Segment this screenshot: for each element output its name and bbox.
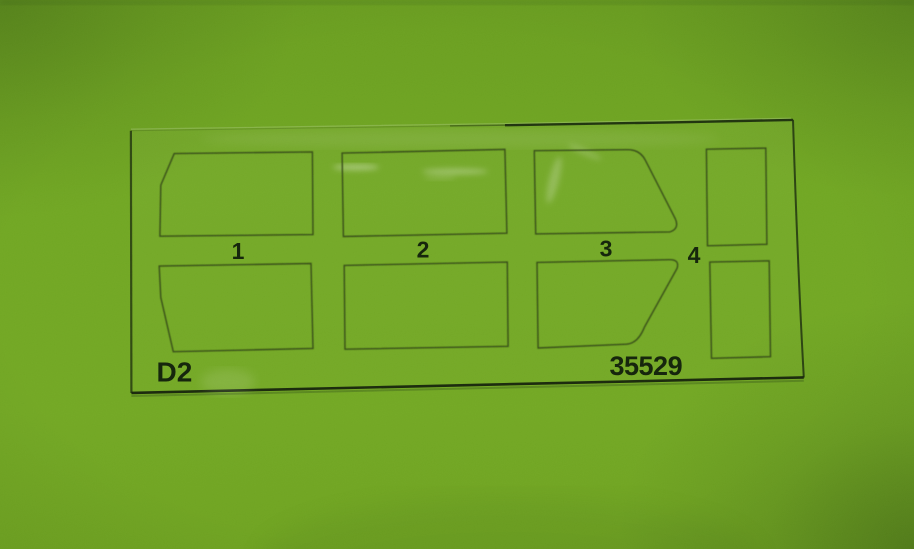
svg-text:1: 1 — [232, 238, 245, 264]
svg-text:D2: D2 — [157, 357, 193, 388]
svg-text:4: 4 — [688, 242, 701, 268]
svg-text:3: 3 — [600, 235, 613, 261]
svg-text:35529: 35529 — [610, 351, 683, 381]
svg-text:2: 2 — [417, 237, 430, 263]
